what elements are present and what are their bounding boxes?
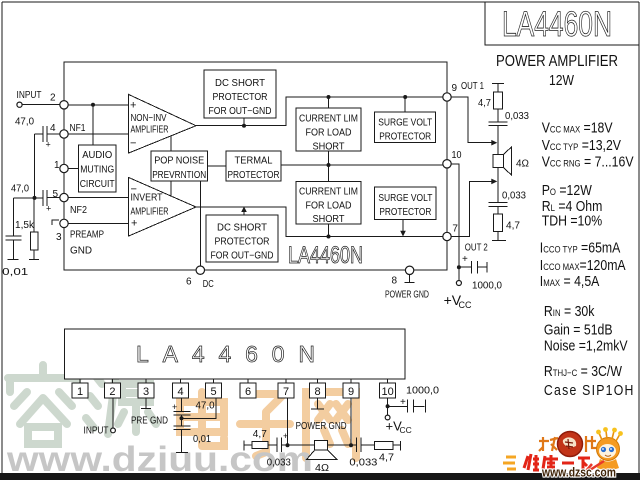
svg-text:FOR LOAD: FOR LOAD [306,128,352,139]
svg-text:DC SHORT: DC SHORT [217,223,267,234]
svg-text:1: 1 [54,160,60,171]
svg-text:47,0: 47,0 [11,184,29,195]
svg-text:AMPLIFIER: AMPLIFIER [131,125,169,136]
svg-text:+: + [46,140,51,150]
svg-text:−: − [130,138,136,150]
svg-text:POWER GND: POWER GND [385,290,429,301]
svg-text:Gain = 51dB: Gain = 51dB [544,321,613,337]
svg-text:+: + [172,402,177,412]
svg-text:4Ω: 4Ω [516,159,530,170]
svg-text:INPUT: INPUT [17,90,42,101]
svg-text:CIRCUIT: CIRCUIT [80,179,115,190]
svg-text:6: 6 [186,277,192,288]
svg-text:AMPLIFIER: AMPLIFIER [131,207,169,218]
svg-text:RTHJ−C = 3C/W: RTHJ−C = 3C/W [544,363,622,379]
svg-text:INVERT: INVERT [131,193,163,204]
svg-text:+: + [283,431,288,441]
svg-text:IMAX = 4,5A: IMAX = 4,5A [540,273,600,289]
svg-text:ICCO TYP =65mA: ICCO TYP =65mA [540,239,621,255]
svg-text:SURGE VOLT: SURGE VOLT [378,193,432,204]
svg-text:9: 9 [348,386,354,398]
svg-text:+: + [400,397,406,408]
svg-text:4,7: 4,7 [253,429,267,440]
svg-text:12W: 12W [549,72,575,89]
svg-text:FOR OUT−GND: FOR OUT−GND [211,251,274,262]
svg-text:4,7: 4,7 [379,453,394,464]
svg-text:SHORT: SHORT [313,142,345,153]
svg-text:0,033: 0,033 [267,458,291,469]
svg-text:8: 8 [392,276,398,287]
svg-text:10: 10 [381,386,393,398]
svg-text:TDH =10%: TDH =10% [542,212,602,228]
svg-text:1: 1 [77,386,83,398]
svg-text:PREVRNTION: PREVRNTION [152,170,206,181]
svg-text:PRE GND: PRE GND [131,416,168,427]
svg-text:SURGE VOLT: SURGE VOLT [378,118,432,129]
svg-text:TERMAL: TERMAL [235,156,273,167]
svg-text:1000,0: 1000,0 [472,281,502,292]
svg-text:CURRENT LIM: CURRENT LIM [299,187,358,198]
svg-text:0,033: 0,033 [502,191,526,202]
svg-text:RIN = 30k: RIN = 30k [544,303,595,319]
svg-text:GND: GND [70,246,92,257]
svg-text:CC: CC [459,300,472,310]
svg-text:1,5k: 1,5k [15,220,35,231]
svg-text:4,7: 4,7 [506,221,520,232]
svg-text:DC: DC [203,279,214,290]
svg-text:PROTECTOR: PROTECTOR [379,132,431,143]
svg-text:4Ω: 4Ω [315,463,330,474]
svg-text:POP NOISE: POP NOISE [154,156,204,167]
svg-text:VCC RNG = 7...16V: VCC RNG = 7...16V [542,153,635,169]
svg-text:1000,0: 1000,0 [406,386,439,397]
svg-text:2: 2 [50,93,56,104]
svg-text:47,0: 47,0 [196,401,215,412]
svg-text:3: 3 [56,232,62,243]
svg-text:NON−INV: NON−INV [131,113,167,124]
svg-text:4: 4 [177,386,183,398]
svg-text:www.dzsc.com: www.dzsc.com [541,466,616,480]
svg-text:PO =12W: PO =12W [542,182,592,198]
svg-text:5: 5 [53,189,59,200]
svg-text:0,033: 0,033 [505,111,529,122]
svg-text:PROTECTOR: PROTECTOR [379,207,431,218]
svg-text:4: 4 [50,123,56,134]
svg-text:OUT 2: OUT 2 [465,243,488,254]
svg-text:3: 3 [143,386,149,398]
svg-text:AUDIO: AUDIO [82,150,112,161]
svg-text:LA4460N: LA4460N [502,5,612,44]
svg-text:FOR LOAD: FOR LOAD [306,201,352,212]
svg-text:PREAMP: PREAMP [70,230,104,241]
svg-text:PROTECTOR: PROTECTOR [228,170,280,181]
svg-text:DC SHORT: DC SHORT [215,78,265,89]
svg-text:POWER GND: POWER GND [296,421,347,432]
svg-text:47,0: 47,0 [15,117,34,128]
svg-text:7: 7 [283,386,289,398]
svg-text:ICCO MAX=120mA: ICCO MAX=120mA [540,257,627,273]
svg-text:10: 10 [452,150,462,161]
svg-text:4,7: 4,7 [478,98,491,109]
svg-text:PROTECTOR: PROTECTOR [213,92,268,103]
svg-text:FOR OUT−GND: FOR OUT−GND [209,106,272,117]
svg-text:LA4460N: LA4460N [288,242,363,269]
svg-text:MUTING: MUTING [80,165,114,176]
svg-text:+: + [131,218,137,230]
svg-text:POWER AMPLIFIER: POWER AMPLIFIER [496,53,618,70]
svg-text:9: 9 [452,83,458,94]
svg-text:+: + [46,204,51,214]
svg-text:Case SIP1OH: Case SIP1OH [544,382,635,398]
svg-text:INPUT: INPUT [84,426,109,437]
svg-text:2: 2 [109,386,115,398]
svg-text:VCC TYP =13,2V: VCC TYP =13,2V [542,137,622,153]
svg-text:7: 7 [452,224,458,235]
svg-text:Noise =1,2mkV: Noise =1,2mkV [544,337,628,353]
svg-text:NF1: NF1 [70,123,86,134]
svg-text:NF2: NF2 [70,205,87,216]
svg-text:VCC MAX =18V: VCC MAX =18V [542,119,614,135]
svg-text:SHORT: SHORT [313,214,345,225]
svg-text:0,01: 0,01 [2,267,29,278]
svg-text:CC: CC [400,425,412,435]
svg-text:PROTECTOR: PROTECTOR [215,237,270,248]
svg-text:6: 6 [245,386,251,398]
svg-text:CURRENT LIM: CURRENT LIM [299,114,358,125]
svg-text:0,01: 0,01 [193,434,211,445]
svg-text:8: 8 [314,386,320,398]
svg-text:+: + [462,254,468,265]
svg-text:OUT 1: OUT 1 [461,81,484,92]
svg-text:5: 5 [210,386,216,398]
svg-text:0,033: 0,033 [349,458,377,469]
svg-text:+: + [130,100,136,112]
